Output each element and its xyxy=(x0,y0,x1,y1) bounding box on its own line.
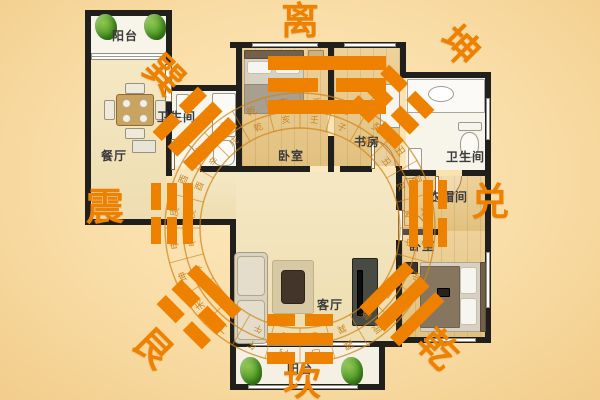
pillow xyxy=(460,298,477,325)
trigram-dui xyxy=(409,180,447,247)
wall-segment xyxy=(328,136,334,172)
wall-segment xyxy=(340,166,372,172)
plate xyxy=(139,99,148,108)
bagua-char-kun: 坤 xyxy=(433,19,487,73)
fengshui-floorplan: 壬壬子子癸癸丑丑艮艮寅寅甲甲卯卯乙乙辰辰巽巽巳巳丙丙午午丁丁未未坤坤申申庚庚酉酉… xyxy=(0,0,600,400)
bedroom2-door-leaf xyxy=(398,210,403,241)
bagua-char-gen: 艮 xyxy=(126,321,180,375)
bagua-char-kan: 坎 xyxy=(283,363,321,400)
sofa-cushion xyxy=(237,256,265,296)
trigram-zhen xyxy=(151,183,193,244)
bagua-char-zhen: 震 xyxy=(86,188,124,226)
room-label-bedroom-1: 卧室 xyxy=(278,147,304,164)
sofa-cushion xyxy=(237,300,265,340)
wall-segment xyxy=(236,166,310,172)
chair xyxy=(125,128,145,139)
wall-segment xyxy=(200,166,242,172)
coffee-table xyxy=(281,270,305,304)
plate xyxy=(122,99,131,108)
plate xyxy=(122,114,131,123)
bed-headboard xyxy=(480,262,486,332)
bagua-char-dui: 兑 xyxy=(471,183,509,221)
sideboard xyxy=(132,140,156,153)
room-label-dining: 餐厅 xyxy=(101,147,127,164)
wall-segment xyxy=(396,170,436,176)
window xyxy=(486,252,490,308)
wall-segment xyxy=(462,170,486,176)
wall-segment xyxy=(400,72,491,78)
room-label-balcony-top: 阳台 xyxy=(112,27,138,44)
window xyxy=(252,43,318,47)
window xyxy=(486,98,490,140)
chair xyxy=(104,100,115,120)
toilet-tank xyxy=(458,122,482,131)
plate xyxy=(139,114,148,123)
plant xyxy=(341,357,363,385)
sink xyxy=(428,86,454,102)
plant xyxy=(240,357,262,385)
bath-cabinet xyxy=(408,148,422,170)
room-label-bathroom-2: 卫生间 xyxy=(446,148,485,165)
room-label-study: 书房 xyxy=(354,133,380,150)
window xyxy=(344,43,396,47)
bagua-char-li: 离 xyxy=(281,2,319,40)
room-label-living: 客厅 xyxy=(317,296,343,313)
dining-table xyxy=(116,94,154,126)
trigram-kan xyxy=(267,314,333,364)
wall-segment xyxy=(236,48,242,172)
pillow xyxy=(460,267,477,294)
plant xyxy=(144,14,166,40)
